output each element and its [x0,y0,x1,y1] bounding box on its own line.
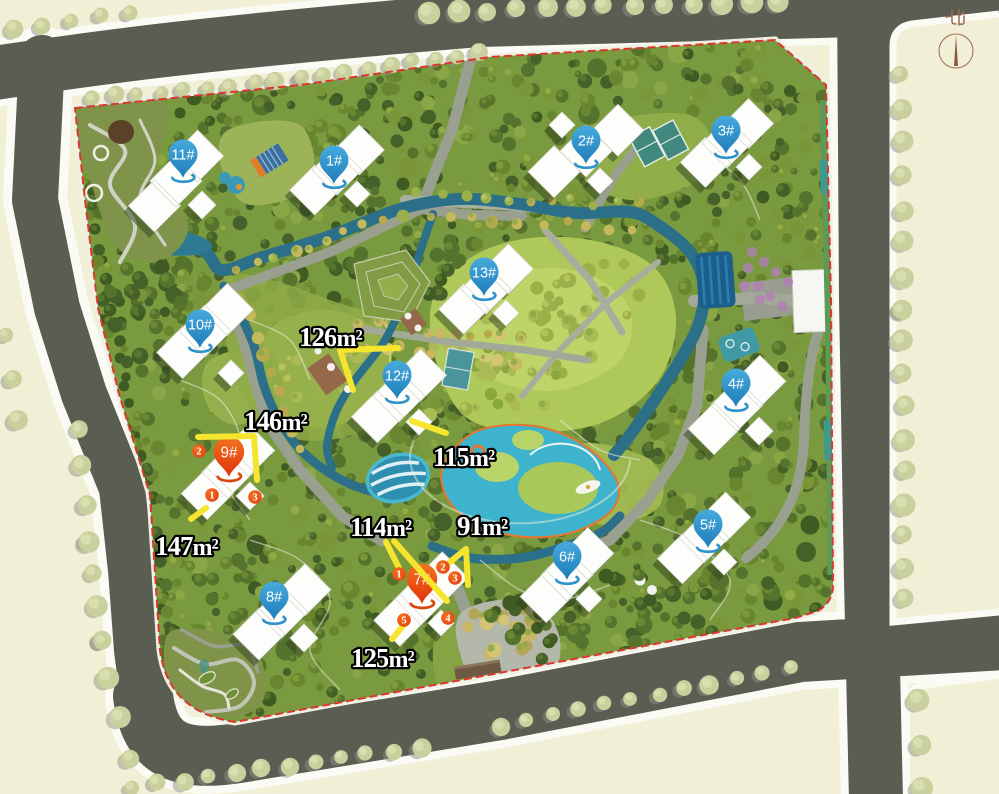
svg-text:114m²: 114m² [350,512,412,542]
svg-text:147m²: 147m² [155,531,218,561]
svg-text:2: 2 [440,563,445,574]
svg-text:9#: 9# [221,445,238,462]
svg-text:3: 3 [452,574,457,585]
svg-text:3: 3 [252,493,257,504]
svg-text:4: 4 [445,614,451,625]
svg-text:12#: 12# [385,369,409,385]
svg-text:13#: 13# [472,266,496,282]
svg-text:4#: 4# [728,377,744,393]
svg-text:11#: 11# [171,148,194,164]
svg-text:146m²: 146m² [244,406,307,436]
svg-text:6#: 6# [559,550,575,566]
svg-text:10#: 10# [188,318,212,334]
svg-text:91m²: 91m² [457,511,508,541]
svg-text:125m²: 125m² [351,643,414,673]
svg-text:5: 5 [401,616,406,627]
svg-text:8#: 8# [266,590,282,606]
svg-text:1: 1 [209,491,214,502]
svg-text:2#: 2# [578,134,594,150]
svg-text:3#: 3# [718,124,734,140]
svg-text:126m²: 126m² [299,322,362,352]
svg-text:2: 2 [196,447,201,458]
svg-text:1#: 1# [326,154,342,170]
svg-text:1: 1 [396,570,401,581]
svg-text:115m²: 115m² [433,442,495,472]
svg-text:5#: 5# [700,518,716,534]
